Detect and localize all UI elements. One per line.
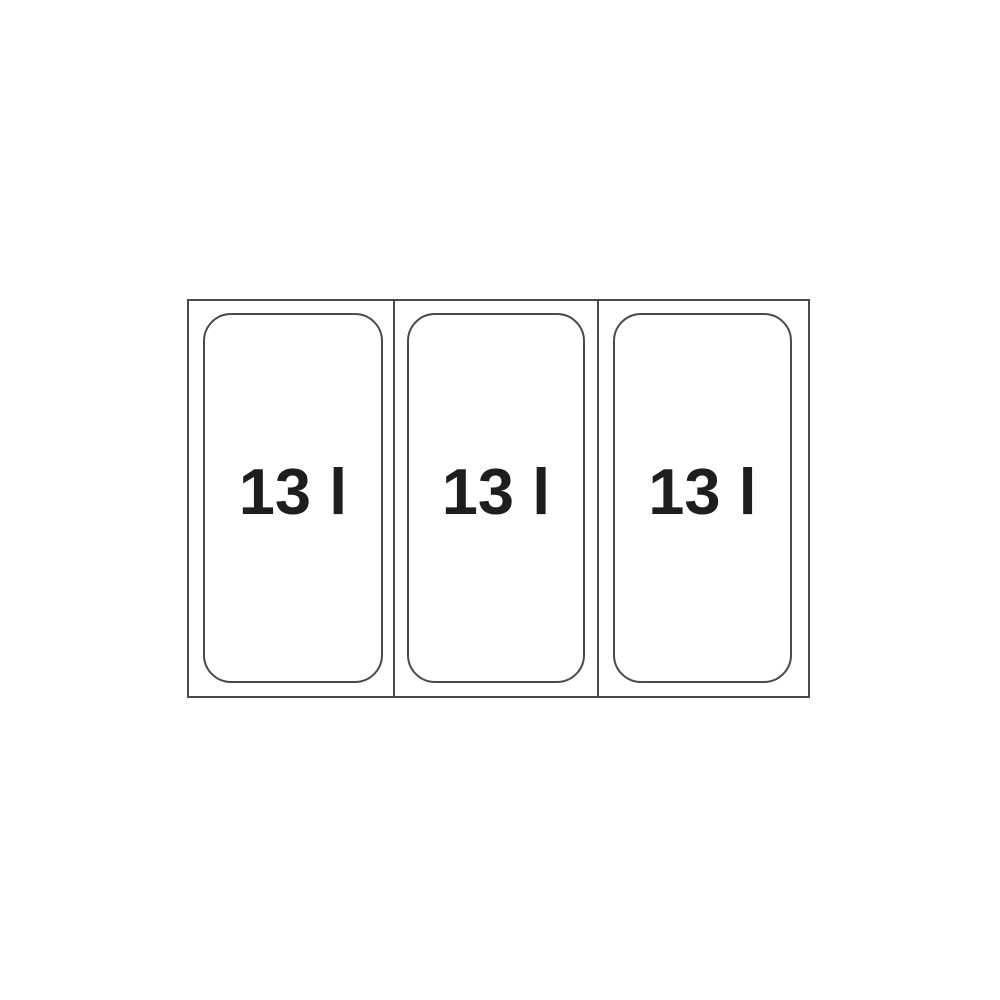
bin-unit-outline: 13 l 13 l 13 l [187, 299, 810, 698]
bin-2-capacity-label: 13 l [442, 459, 550, 524]
diagram-canvas: 13 l 13 l 13 l [0, 0, 1000, 1000]
bin-3-outline: 13 l [613, 313, 792, 683]
compartment-3: 13 l [597, 301, 808, 696]
bin-3-capacity-label: 13 l [648, 459, 756, 524]
compartment-1: 13 l [189, 301, 393, 696]
bin-1-capacity-label: 13 l [239, 459, 347, 524]
bin-2-outline: 13 l [407, 313, 585, 683]
compartment-2: 13 l [393, 301, 597, 696]
bin-1-outline: 13 l [203, 313, 383, 683]
